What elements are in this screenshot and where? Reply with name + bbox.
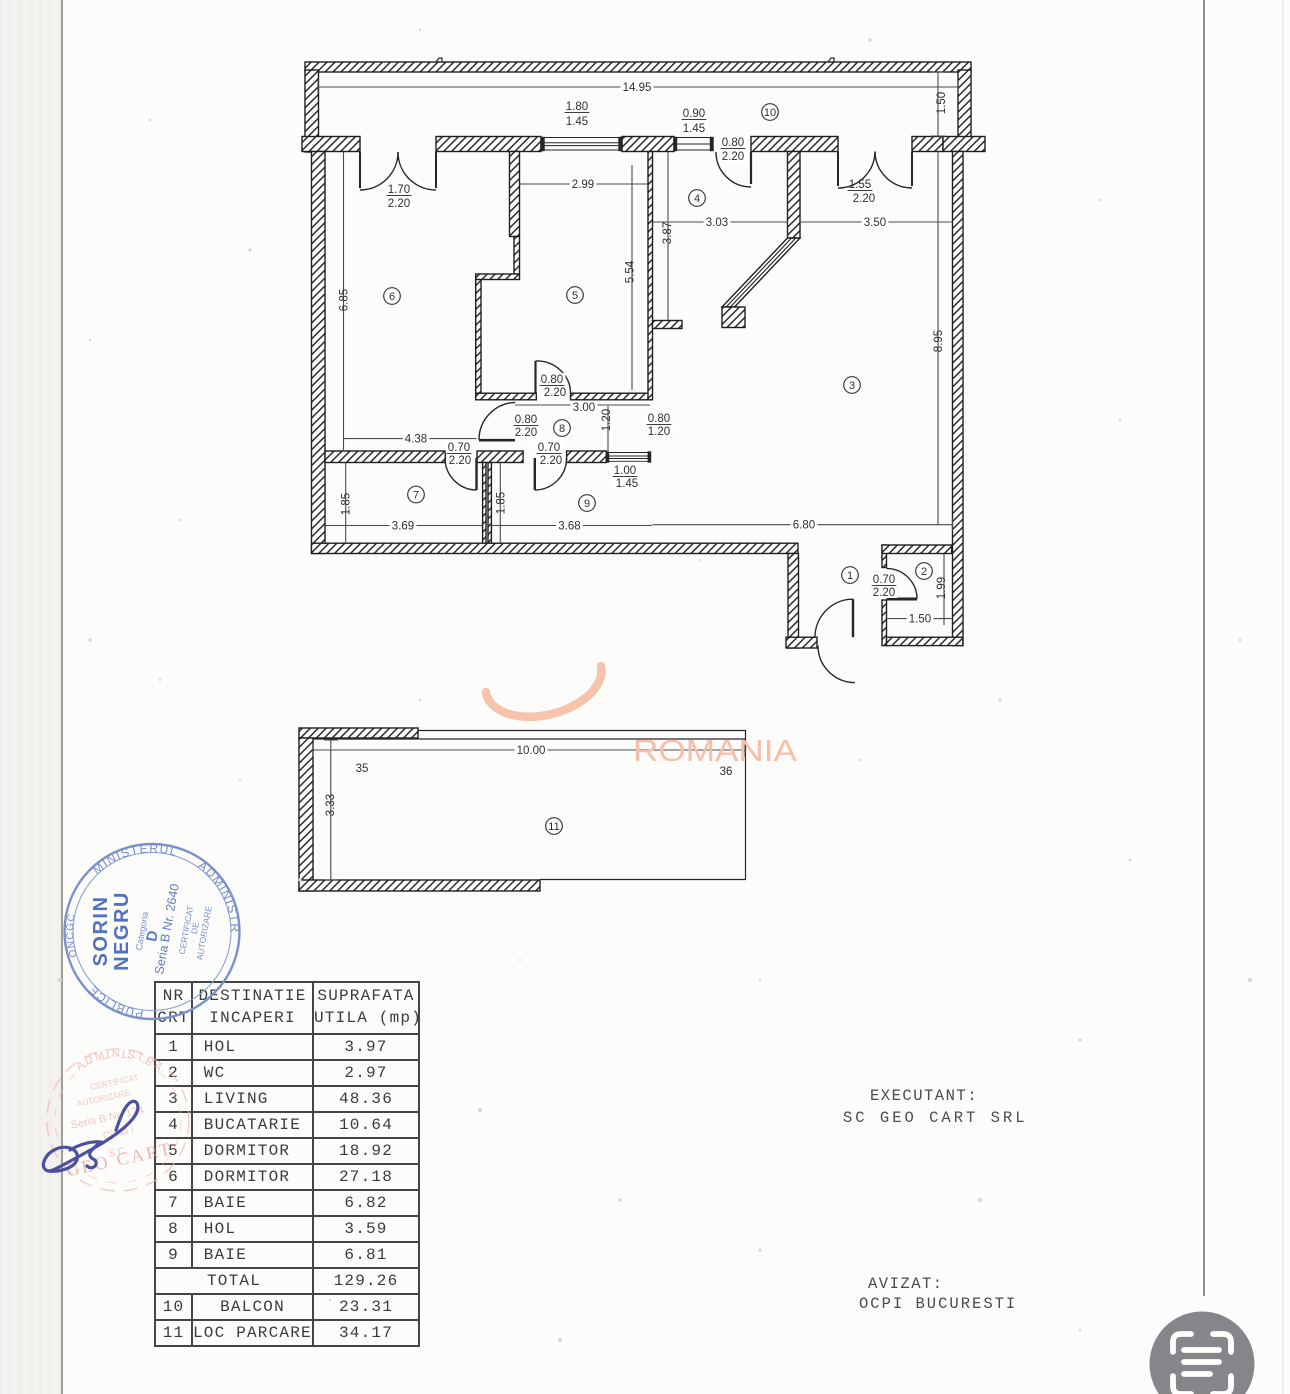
svg-text:1.45: 1.45 bbox=[566, 116, 588, 128]
svg-text:8.95: 8.95 bbox=[933, 330, 945, 352]
svg-text:1.80: 1.80 bbox=[566, 101, 588, 113]
svg-text:3.87: 3.87 bbox=[662, 222, 674, 244]
svg-text:3.69: 3.69 bbox=[392, 521, 414, 533]
svg-text:NEGRU: NEGRU bbox=[111, 891, 133, 971]
svg-text:2.20: 2.20 bbox=[540, 455, 562, 467]
svg-text:6.85: 6.85 bbox=[339, 289, 351, 311]
svg-text:11: 11 bbox=[548, 821, 559, 833]
svg-text:1.45: 1.45 bbox=[683, 123, 705, 135]
svg-text:2.20: 2.20 bbox=[722, 151, 744, 163]
svg-text:7: 7 bbox=[413, 489, 419, 501]
svg-text:1.50: 1.50 bbox=[936, 92, 948, 114]
svg-text:1.00: 1.00 bbox=[614, 465, 636, 477]
svg-text:6: 6 bbox=[389, 291, 395, 303]
svg-text:0.80: 0.80 bbox=[722, 137, 744, 149]
svg-text:6.80: 6.80 bbox=[793, 520, 815, 532]
svg-text:1: 1 bbox=[847, 570, 853, 582]
svg-text:0.70: 0.70 bbox=[448, 442, 470, 454]
svg-text:ROMANIA: ROMANIA bbox=[633, 733, 797, 768]
svg-text:1.70: 1.70 bbox=[388, 184, 410, 196]
svg-text:3.33: 3.33 bbox=[325, 794, 337, 816]
svg-text:0.80: 0.80 bbox=[515, 414, 537, 426]
svg-text:2.20: 2.20 bbox=[449, 455, 471, 467]
svg-text:1.20: 1.20 bbox=[648, 426, 670, 438]
svg-text:1.50: 1.50 bbox=[909, 614, 931, 626]
svg-text:0.70: 0.70 bbox=[873, 574, 895, 586]
svg-text:10: 10 bbox=[764, 107, 776, 119]
svg-text:3.03: 3.03 bbox=[706, 217, 728, 229]
svg-text:1.45: 1.45 bbox=[616, 478, 638, 490]
svg-text:CERTIFICAT: CERTIFICAT bbox=[89, 1072, 139, 1092]
svg-text:3.68: 3.68 bbox=[558, 521, 580, 533]
svg-text:5.54: 5.54 bbox=[625, 260, 637, 283]
svg-text:1.55: 1.55 bbox=[849, 179, 871, 191]
svg-text:3.50: 3.50 bbox=[864, 217, 886, 229]
svg-text:2.99: 2.99 bbox=[572, 179, 594, 191]
svg-text:10.00: 10.00 bbox=[517, 745, 546, 757]
svg-text:2.20: 2.20 bbox=[544, 387, 566, 399]
svg-text:1.20: 1.20 bbox=[601, 409, 613, 431]
svg-text:3.00: 3.00 bbox=[573, 402, 595, 414]
svg-text:4: 4 bbox=[694, 193, 700, 205]
svg-text:3: 3 bbox=[849, 380, 855, 392]
svg-text:14.95: 14.95 bbox=[623, 82, 652, 94]
svg-text:9: 9 bbox=[584, 498, 590, 510]
svg-text:ADMINISTRA: ADMINISTRA bbox=[74, 1048, 166, 1076]
svg-text:5: 5 bbox=[572, 290, 578, 302]
svg-text:2: 2 bbox=[921, 566, 927, 578]
svg-text:4.38: 4.38 bbox=[405, 434, 427, 446]
svg-text:2.20: 2.20 bbox=[853, 193, 875, 205]
svg-text:0.80: 0.80 bbox=[541, 374, 563, 386]
svg-text:2.20: 2.20 bbox=[388, 198, 410, 210]
svg-text:2.20: 2.20 bbox=[873, 587, 895, 599]
svg-text:1.85: 1.85 bbox=[341, 493, 353, 515]
svg-text:Seria B Nr. 2640: Seria B Nr. 2640 bbox=[152, 883, 182, 976]
svg-text:PUBLICE: PUBLICE bbox=[87, 982, 144, 1019]
svg-text:AUTORIZARE: AUTORIZARE bbox=[76, 1087, 132, 1108]
svg-text:SORIN: SORIN bbox=[90, 896, 112, 967]
svg-text:0.90: 0.90 bbox=[683, 108, 705, 120]
svg-text:35: 35 bbox=[356, 763, 369, 775]
svg-text:8: 8 bbox=[559, 423, 565, 435]
svg-text:0.80: 0.80 bbox=[648, 413, 670, 425]
svg-text:2.20: 2.20 bbox=[515, 427, 537, 439]
svg-text:1.99: 1.99 bbox=[936, 577, 948, 599]
svg-text:0.70: 0.70 bbox=[538, 442, 560, 454]
svg-text:1.85: 1.85 bbox=[495, 492, 507, 514]
